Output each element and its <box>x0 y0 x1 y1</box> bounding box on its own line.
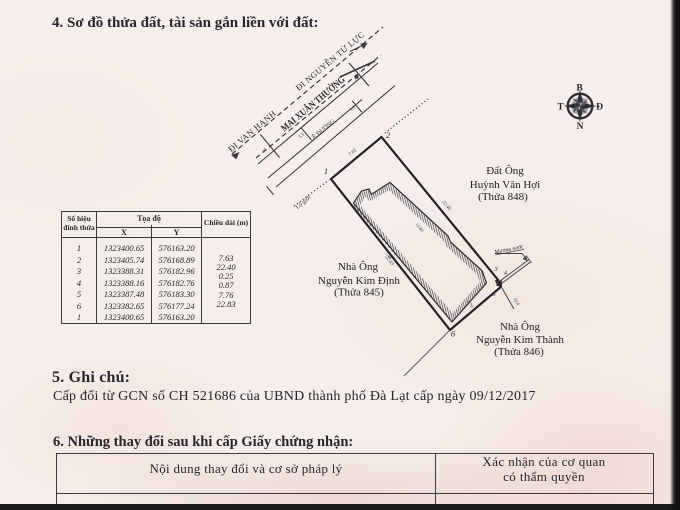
svg-text:Nguyễn Kim Thành: Nguyễn Kim Thành <box>476 334 564 346</box>
svg-text:6: 6 <box>451 329 456 339</box>
svg-text:12.80: 12.80 <box>414 222 425 234</box>
svg-text:Đ: Đ <box>596 103 603 113</box>
svg-text:1: 1 <box>324 166 328 176</box>
svg-text:10: 10 <box>261 147 268 154</box>
svg-text:T: T <box>557 103 564 113</box>
svg-text:7.76: 7.76 <box>464 300 474 310</box>
svg-text:N: N <box>577 122 584 132</box>
svg-text:Nguyễn Kim Định: Nguyễn Kim Định <box>318 275 400 287</box>
svg-text:3: 3 <box>493 266 498 273</box>
svg-text:B: B <box>576 84 583 94</box>
svg-text:Huỳnh Văn Hợi: Huỳnh Văn Hợi <box>470 179 540 191</box>
svg-text:Lộ giới: Lộ giới <box>295 195 313 211</box>
svg-text:Đất Ông: Đất Ông <box>486 165 524 177</box>
svg-text:2: 2 <box>386 130 391 140</box>
svg-text:Nhà Ông: Nhà Ông <box>338 261 379 273</box>
svg-text:10: 10 <box>353 75 360 82</box>
svg-text:Nhà Ông: Nhà Ông <box>500 321 541 333</box>
svg-text:(Thửa 845): (Thửa 845) <box>334 287 384 299</box>
svg-text:(Thửa 846): (Thửa 846) <box>494 346 544 358</box>
svg-text:MAI XUÂN THƯỜNG: MAI XUÂN THƯỜNG <box>279 73 348 134</box>
svg-text:Mương nước: Mương nước <box>494 244 524 256</box>
svg-text:10.6: 10.6 <box>512 297 521 307</box>
svg-text:(Thửa 848): (Thửa 848) <box>478 191 528 203</box>
